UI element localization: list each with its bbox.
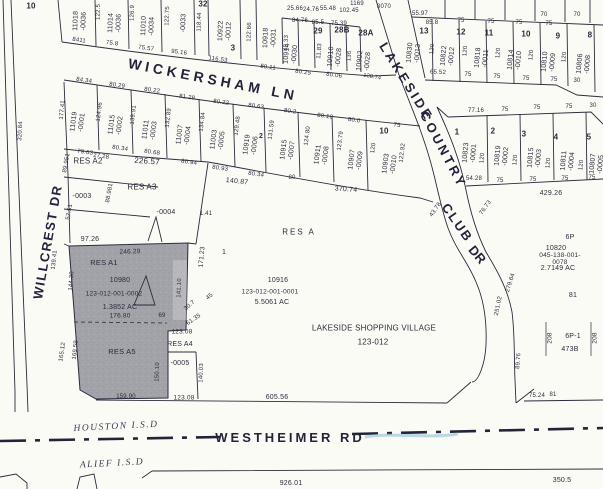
map-label: 226.57 bbox=[134, 157, 160, 167]
reserve-label-a3: RES A3 bbox=[127, 184, 156, 193]
map-label: 3 bbox=[522, 131, 527, 140]
map-label: 150.10 bbox=[154, 362, 161, 382]
map-label: 28A bbox=[358, 30, 373, 39]
map-label: 370.74 bbox=[334, 185, 357, 194]
map-label: 65.52 bbox=[430, 69, 446, 76]
map-label: 81 bbox=[549, 392, 556, 398]
map-label: 25.66 bbox=[287, 6, 303, 12]
map-label: 1 bbox=[455, 129, 460, 138]
map-label: 132.89 bbox=[165, 108, 174, 128]
map-label: 11010 -0034 bbox=[140, 16, 156, 36]
map-label: 75 bbox=[550, 77, 557, 83]
map-label: 122.92 bbox=[399, 143, 408, 163]
map-label: 350.5 bbox=[553, 477, 572, 485]
map-label: 9 bbox=[556, 33, 561, 42]
map-label: 80.63 bbox=[248, 103, 265, 112]
map-label: 279.64 bbox=[505, 273, 517, 294]
map-label: 10911 -0008 bbox=[313, 144, 330, 166]
map-label: 11018 -0036 bbox=[72, 11, 88, 31]
plat-map: 10321169807011018 -0036122.511014 -00361… bbox=[0, 0, 603, 489]
map-label: 95.16 bbox=[171, 49, 188, 58]
map-label: 605.56 bbox=[266, 394, 289, 402]
map-label: 75 bbox=[464, 72, 471, 78]
map-label: 30 bbox=[573, 78, 580, 84]
parcel-id-10980: 10980 bbox=[110, 277, 130, 285]
map-label: 045-138-001-0078 bbox=[539, 252, 582, 266]
map-label: 29 bbox=[313, 28, 322, 37]
map-label: 208 bbox=[546, 332, 553, 343]
map-label: 10914 -0030 bbox=[283, 43, 300, 65]
map-label: 2 bbox=[259, 133, 263, 141]
map-label: 102.45 bbox=[339, 8, 359, 14]
map-label: 11014 -0036 bbox=[107, 13, 123, 33]
map-label: 1 bbox=[222, 249, 226, 257]
map-label: 10830 -0013 bbox=[406, 42, 423, 64]
street-label-wickersham-ln: WICKERSHAM LN bbox=[127, 56, 299, 104]
map-label: 131.59 bbox=[268, 120, 277, 140]
map-label: 116.53 bbox=[208, 55, 228, 64]
map-label: 80.2 bbox=[283, 108, 296, 116]
map-label: 75.57 bbox=[138, 45, 155, 54]
map-label: 85.8 bbox=[426, 20, 438, 26]
labels-layer: 10321169807011018 -0036122.511014 -00361… bbox=[0, 0, 603, 489]
map-label: 28B bbox=[334, 27, 349, 36]
map-label: 80.06 bbox=[326, 72, 343, 81]
map-label: 120 bbox=[479, 152, 486, 163]
map-label: 120 bbox=[512, 154, 519, 165]
map-label: 129.48 bbox=[234, 116, 243, 136]
map-label: 122.75 bbox=[164, 6, 171, 26]
map-label: 11 bbox=[485, 30, 494, 39]
map-label: 8070 bbox=[377, 4, 391, 10]
map-label: 11.83 bbox=[316, 43, 324, 59]
map-label: 97.26 bbox=[81, 236, 100, 244]
map-label: 128.74 bbox=[363, 74, 382, 83]
map-label: -0033 bbox=[180, 13, 188, 32]
map-label: 10902 -0028 bbox=[356, 50, 373, 72]
reserve-label-a1: RES A1 bbox=[90, 259, 117, 267]
map-label: 140.87 bbox=[225, 177, 248, 187]
street-label-country: COUNTRY bbox=[417, 109, 469, 190]
map-label: 246.29 bbox=[119, 248, 140, 256]
map-label: 55.48 bbox=[320, 6, 336, 12]
map-label: 159.90 bbox=[116, 394, 136, 400]
map-label: 10806 -0008 bbox=[576, 53, 593, 75]
map-label: 75.24 bbox=[529, 393, 545, 399]
map-label: 80 bbox=[288, 175, 295, 181]
map-label: 10819 -0002 bbox=[494, 145, 511, 167]
map-label: 3 bbox=[231, 45, 236, 54]
street-label-willcrest-dr: WILLCREST DR bbox=[31, 184, 65, 301]
map-label: 45 bbox=[205, 292, 215, 302]
map-label: 320.84 bbox=[17, 121, 24, 141]
map-label: 8 bbox=[588, 32, 593, 41]
map-label: 80.10 bbox=[317, 113, 334, 122]
parcel-label-6p: 6P bbox=[566, 234, 575, 242]
map-label: 2.7149 AC bbox=[541, 265, 576, 273]
map-label: 1.41 bbox=[200, 211, 212, 217]
street-label-club: CLUB bbox=[439, 201, 476, 245]
map-label: 81.28 bbox=[179, 94, 196, 103]
map-label: 139.91 bbox=[130, 105, 139, 125]
map-label: 10907 -0009 bbox=[347, 149, 364, 171]
map-label: 80.0 bbox=[347, 117, 360, 125]
map-label: -0003 bbox=[73, 193, 92, 201]
map-label: 80.93 bbox=[212, 165, 229, 174]
map-label: 80.34 bbox=[248, 171, 265, 180]
map-label: 10814 -0010 bbox=[507, 49, 524, 71]
map-label: 84.76 bbox=[292, 18, 308, 24]
map-label: 11007 -0004 bbox=[175, 124, 192, 146]
map-label: 120 bbox=[429, 43, 436, 54]
map-label: 126.9 bbox=[129, 5, 136, 21]
map-label: 134.84 bbox=[199, 112, 208, 132]
map-label: 123-012-001-0001 bbox=[242, 288, 299, 295]
street-label-westheimer-rd: WESTHEIMER RD bbox=[215, 431, 365, 445]
map-label: 80.11 bbox=[260, 64, 276, 73]
map-label: 165.12 bbox=[58, 342, 67, 362]
map-label: 80.25 bbox=[295, 69, 312, 78]
map-label: 4 bbox=[554, 134, 559, 143]
map-label: 77.16 bbox=[468, 108, 484, 114]
map-label: 12 bbox=[456, 29, 465, 38]
map-label: 75 bbox=[496, 178, 503, 184]
map-label: 10807 -0005 bbox=[589, 153, 603, 175]
map-label: 10815 -0003 bbox=[527, 147, 544, 169]
map-label: 169.59 bbox=[72, 340, 80, 360]
map-label: 61.35 bbox=[186, 313, 203, 327]
map-label: 123.08 bbox=[173, 394, 194, 401]
map-label: 10810 -0009 bbox=[541, 51, 558, 73]
map-label: 123-012-001-0002 bbox=[86, 290, 143, 297]
map-label: 75 bbox=[522, 76, 529, 82]
map-label: 11011 -0003 bbox=[141, 119, 158, 140]
map-label: 10919 -0006 bbox=[242, 134, 259, 156]
map-label: 10 bbox=[26, 3, 35, 12]
map-label: 251.02 bbox=[494, 296, 504, 316]
district-label-houston-isd: HOUSTON I.S.D bbox=[73, 420, 158, 435]
map-label: 30 bbox=[589, 103, 596, 109]
map-label: 10818 -0011 bbox=[474, 47, 491, 69]
map-label: 75 bbox=[487, 19, 494, 25]
subdivision-label-lakeside-shopping-village: LAKESIDE SHOPPING VILLAGE bbox=[312, 325, 436, 334]
map-label: 55.97 bbox=[412, 11, 428, 17]
map-label: 75 bbox=[393, 122, 401, 129]
map-label: 473B bbox=[561, 346, 578, 354]
map-label: 10910 -0028 bbox=[327, 46, 344, 68]
map-label: 120 bbox=[578, 159, 585, 170]
map-label: 88.981 bbox=[105, 183, 115, 203]
map-label: 76.73 bbox=[479, 200, 493, 217]
map-label: 1169 bbox=[350, 1, 364, 7]
map-label: 120 bbox=[462, 45, 469, 56]
map-label: 926.01 bbox=[280, 480, 303, 488]
map-label: 75 bbox=[515, 20, 522, 26]
map-label: 11003 -0005 bbox=[209, 129, 226, 151]
map-label: 10822 -0012 bbox=[440, 45, 457, 67]
map-label: 32 bbox=[198, 1, 207, 10]
map-label: 75 bbox=[545, 21, 552, 27]
map-label: 11019 -0001 bbox=[69, 111, 86, 133]
map-label: 75 bbox=[588, 175, 595, 181]
map-label: 5.5061 AC bbox=[255, 299, 290, 307]
map-label: 10823 -0001 bbox=[462, 142, 479, 164]
map-label: -0004 bbox=[157, 209, 176, 217]
map-label: 30.7 bbox=[183, 300, 197, 313]
map-label: 69 bbox=[158, 313, 165, 319]
map-label: 10811 -0004 bbox=[560, 150, 577, 171]
reserve-label-a4: RES A4 bbox=[167, 341, 193, 349]
map-label: 10903 -0010 bbox=[381, 153, 398, 175]
map-label: 429.26 bbox=[540, 190, 563, 198]
map-label: 24.76 bbox=[303, 7, 319, 13]
map-label: 75 bbox=[493, 74, 500, 80]
map-label: 75 bbox=[501, 107, 508, 113]
map-label: 85.5 bbox=[312, 20, 324, 26]
map-label: 80.22 bbox=[144, 87, 161, 96]
map-label: 122.5 bbox=[95, 4, 102, 20]
map-label: 80.29 bbox=[109, 82, 126, 91]
map-label: 120 bbox=[528, 49, 535, 60]
map-label: 10922 -0012 bbox=[217, 21, 233, 42]
map-label: 10 bbox=[379, 128, 388, 137]
map-label: 120 bbox=[561, 51, 568, 62]
map-label: 80.22 bbox=[213, 99, 230, 108]
map-label: 11015 -0002 bbox=[107, 114, 124, 136]
map-label: 80.34 bbox=[112, 145, 129, 154]
map-label: 75.8 bbox=[105, 40, 118, 48]
map-label: 120 bbox=[495, 47, 502, 58]
map-label: 70 bbox=[540, 12, 547, 18]
map-label: -0005 bbox=[171, 360, 190, 368]
map-label: 2 bbox=[491, 128, 496, 137]
map-label: 120 bbox=[370, 142, 378, 153]
map-label: 57.51 bbox=[65, 204, 74, 221]
map-label: 124.96 bbox=[96, 102, 105, 122]
map-label: 141.10 bbox=[176, 278, 183, 298]
map-label: 75 bbox=[565, 104, 572, 110]
parcel-id-10916: 10916 bbox=[268, 277, 288, 285]
map-label: 89.951 bbox=[62, 153, 72, 173]
map-label: 81 bbox=[569, 292, 577, 300]
map-label: 70 bbox=[573, 12, 580, 18]
map-label: 89.76 bbox=[515, 353, 523, 370]
map-label: 123-012 bbox=[358, 339, 389, 348]
map-label: 75 bbox=[529, 177, 536, 183]
map-label: 176.80 bbox=[109, 312, 130, 319]
map-label: 10 bbox=[521, 31, 530, 40]
map-label: 10918 -0031 bbox=[262, 28, 278, 49]
map-label: 123.08 bbox=[171, 328, 192, 335]
map-label: 13 bbox=[419, 28, 428, 37]
map-label: 10915 -0007 bbox=[279, 139, 296, 161]
map-label: 118.44 bbox=[196, 12, 203, 31]
map-label: 120 bbox=[545, 157, 552, 168]
map-label: 75 bbox=[561, 176, 568, 182]
map-label: 140.03 bbox=[198, 363, 205, 383]
map-label: 8411 bbox=[72, 37, 86, 45]
map-label: 144.30 bbox=[68, 271, 76, 291]
district-label-alief-isd: ALIEF I.S.D bbox=[80, 457, 145, 471]
map-label: 75 bbox=[457, 18, 464, 24]
map-label: 123.79 bbox=[337, 131, 346, 151]
reserve-label-a: RES A bbox=[282, 229, 316, 238]
map-label: 1.3852 AC bbox=[103, 304, 138, 312]
map-label: 171.23 bbox=[198, 246, 207, 268]
reserve-label-a5: RES A5 bbox=[108, 348, 135, 356]
map-label: 5 bbox=[587, 134, 592, 143]
map-label: 177.41 bbox=[59, 100, 67, 120]
reserve-label-a2: RES A2 bbox=[73, 158, 102, 167]
map-label: 208 bbox=[591, 332, 598, 343]
map-label: 136 bbox=[346, 50, 353, 61]
map-label: 80.94 bbox=[181, 159, 198, 168]
street-label-dr: DR bbox=[465, 243, 488, 267]
map-label: 75 bbox=[533, 105, 540, 111]
map-label: 124.80 bbox=[304, 126, 313, 146]
map-label: 84.34 bbox=[76, 77, 93, 86]
map-label: 122.66 bbox=[246, 22, 253, 42]
parcel-label-6p-1: 6P-1 bbox=[565, 333, 581, 341]
